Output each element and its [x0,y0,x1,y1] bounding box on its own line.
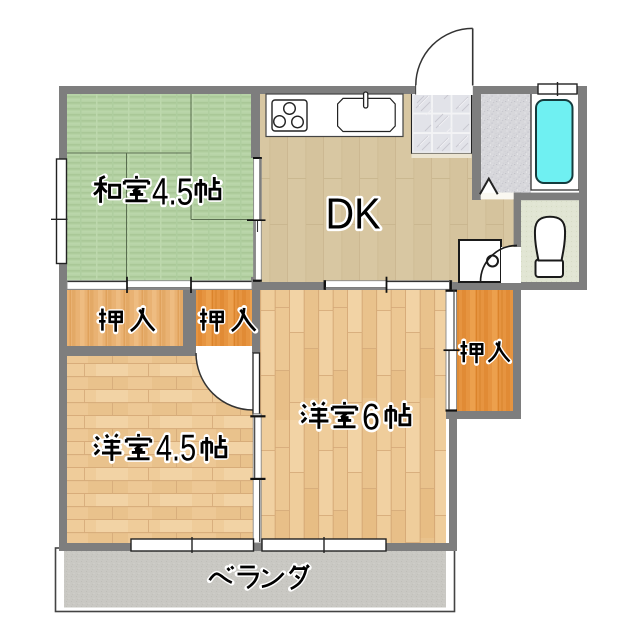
svg-text:4.5: 4.5 [152,171,193,213]
svg-text:4.5: 4.5 [156,428,196,469]
svg-text:DK: DK [326,189,381,238]
svg-text:6: 6 [362,397,380,438]
